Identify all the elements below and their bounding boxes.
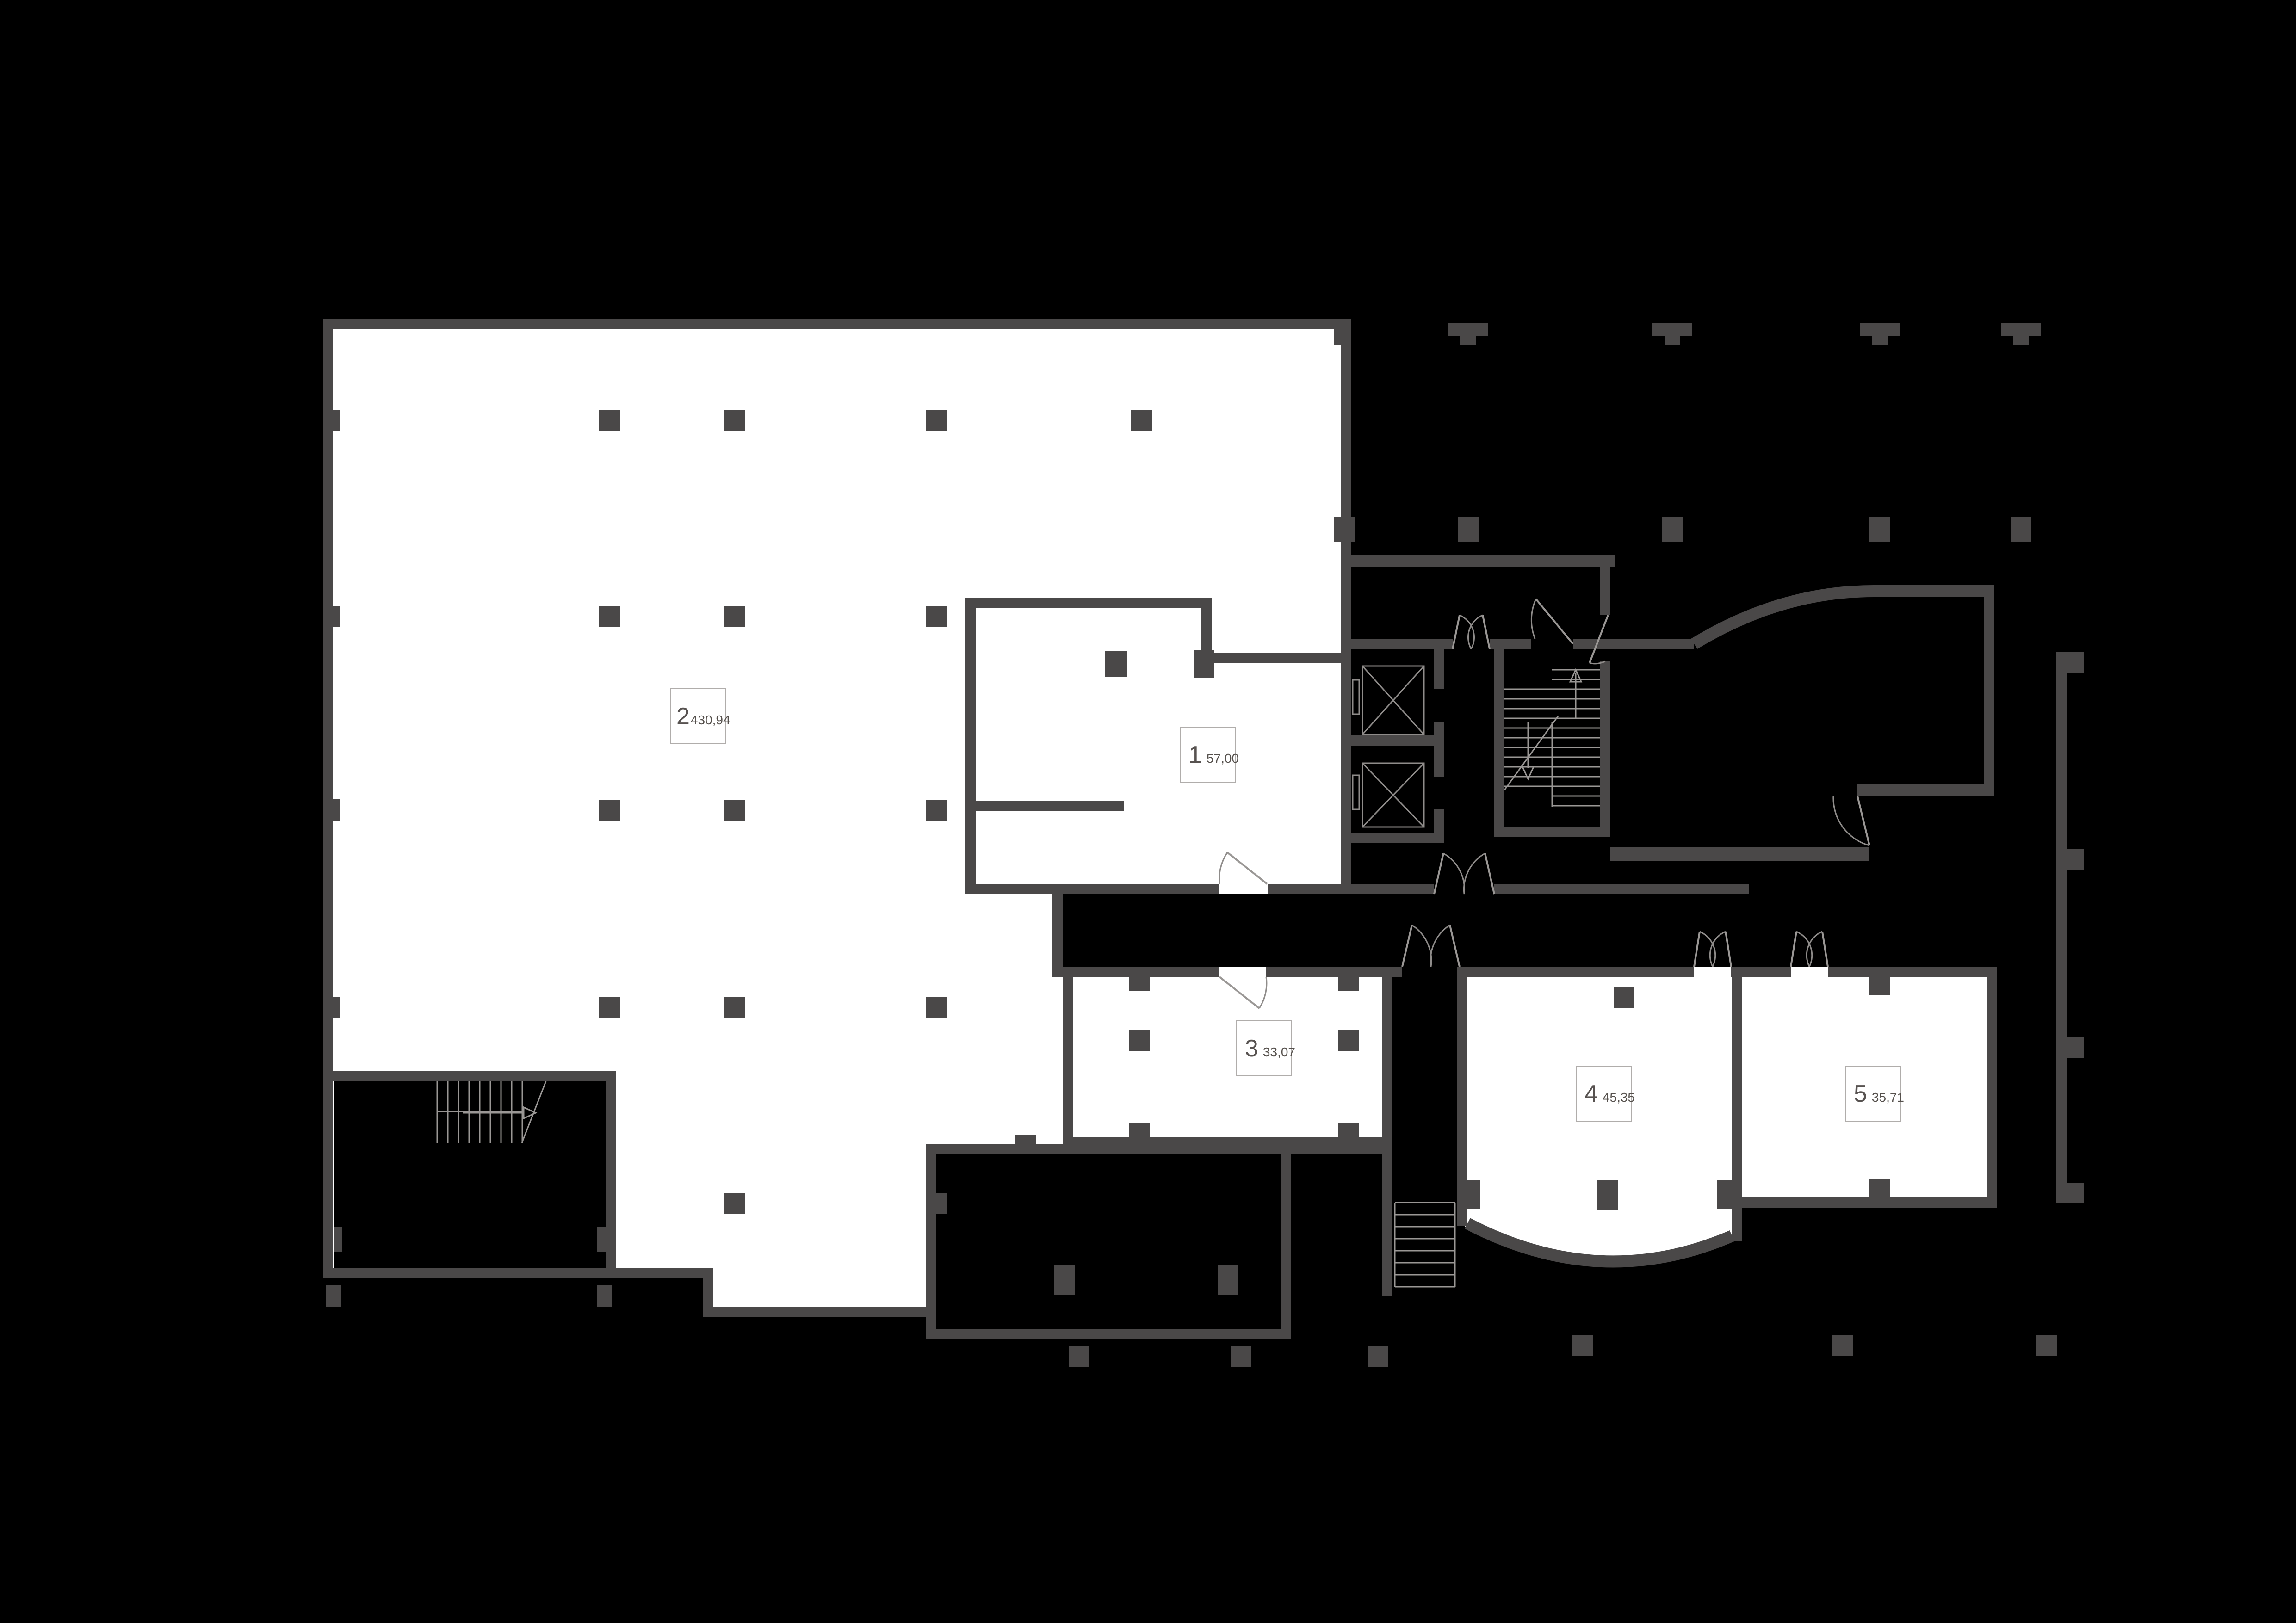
wall-corridor-south-c — [1460, 967, 1694, 977]
wall-outer-far-right — [2056, 652, 2067, 1203]
wall-room1-partition — [965, 801, 1124, 811]
wall-corridor-north-b — [1494, 884, 1749, 894]
wall-corridor-north-a — [1341, 884, 1434, 894]
wall-outer-right — [1341, 319, 1351, 894]
wall-shaft-right-b — [1434, 722, 1444, 777]
unit-4-area: 45,35 — [1603, 1090, 1635, 1105]
room-3-area[interactable] — [1063, 967, 1392, 1147]
wall-topright-right — [1984, 591, 1994, 796]
wall-stairwell-right-b — [1600, 661, 1610, 837]
bottom-middle-room — [936, 1154, 1281, 1329]
unit-2-area: 430,94 — [691, 713, 730, 727]
wall-stairwell-left — [1494, 649, 1504, 837]
unit-label-4[interactable]: 445,35 — [1576, 1066, 1635, 1121]
unit-1-area: 57,00 — [1207, 751, 1239, 765]
wall-corridor-south-a — [1052, 967, 1219, 977]
unit-3-number: 3 — [1245, 1035, 1258, 1062]
wall-room1-bottom-a — [965, 884, 1219, 894]
wall-stairroom-right — [606, 1071, 616, 1278]
wall-core-row-a — [1351, 639, 1453, 649]
wall-room1-top-right — [1212, 653, 1351, 663]
wall-outer-bottom-a — [323, 1268, 713, 1278]
wall-bottomroom-left — [926, 1154, 936, 1339]
wall-corridor-west-end — [1052, 894, 1063, 967]
wall-stub-3 — [2067, 1037, 2084, 1058]
wall-room5-right — [1987, 967, 1997, 1208]
unit-label-1[interactable]: 157,00 — [1180, 727, 1239, 782]
unit-3-area: 33,07 — [1263, 1045, 1295, 1059]
wall-stairroom-top — [323, 1071, 616, 1081]
unit-label-2[interactable]: 2430,94 — [670, 689, 730, 744]
unit-2-number: 2 — [676, 703, 690, 730]
wall-outer-bottom-b — [713, 1307, 936, 1317]
wall-room1-left — [965, 598, 976, 894]
wall-shaft-right-a — [1434, 649, 1444, 689]
wall-topright-bottom — [1857, 784, 1984, 796]
wall-stub-4 — [2067, 1183, 2084, 1203]
corridor — [1063, 894, 1781, 967]
wall-shaft-right-c — [1434, 809, 1444, 843]
wall-corridor-north-c — [1610, 847, 1869, 861]
wall-shaft-bottom — [1351, 833, 1434, 843]
wall-room3-left — [1063, 967, 1073, 1147]
wall-room5-bottom — [1732, 1197, 1997, 1208]
wall-stub-1 — [2067, 652, 2084, 673]
unit-label-5[interactable]: 535,71 — [1845, 1066, 1904, 1121]
wall-between-shafts — [1351, 735, 1434, 746]
wall-corridor-south-e — [1828, 967, 1997, 977]
floor-plan-page: 157,00 2430,94 333,07 445,35 535,71 — [0, 0, 2296, 1623]
wall-room1-top-left — [965, 598, 1212, 608]
wall-outer-left — [323, 319, 333, 1278]
wall-stub-2 — [2067, 849, 2084, 870]
wall-core-row-c — [1573, 639, 1694, 649]
wall-corridor-south-b — [1266, 967, 1402, 977]
floor-plan-drawing: 157,00 2430,94 333,07 445,35 535,71 — [0, 0, 2296, 1623]
wall-outer-top — [323, 319, 1351, 329]
wall-core-top — [1341, 555, 1615, 567]
wall-step-vertical — [703, 1268, 713, 1317]
unit-5-area: 35,71 — [1872, 1090, 1904, 1105]
wall-stairwell-bottom — [1504, 827, 1600, 837]
wall-room1-bottom-b — [1268, 884, 1341, 894]
wall-bottomroom-bottom — [926, 1329, 1291, 1339]
unit-4-number: 4 — [1584, 1080, 1598, 1107]
wall-stairwell-right-a — [1600, 555, 1610, 615]
unit-5-number: 5 — [1854, 1080, 1867, 1107]
wall-room3-right-strip — [1382, 967, 1392, 1296]
wall-core-row-b — [1490, 639, 1531, 649]
room-2-area[interactable] — [333, 329, 1341, 894]
wall-bottomroom-right — [1281, 1154, 1291, 1339]
wall-room3-bottom — [1063, 1137, 1392, 1147]
stair-room-lower-left — [334, 1081, 616, 1268]
unit-1-number: 1 — [1188, 741, 1202, 768]
unit-label-3[interactable]: 333,07 — [1237, 1021, 1295, 1076]
